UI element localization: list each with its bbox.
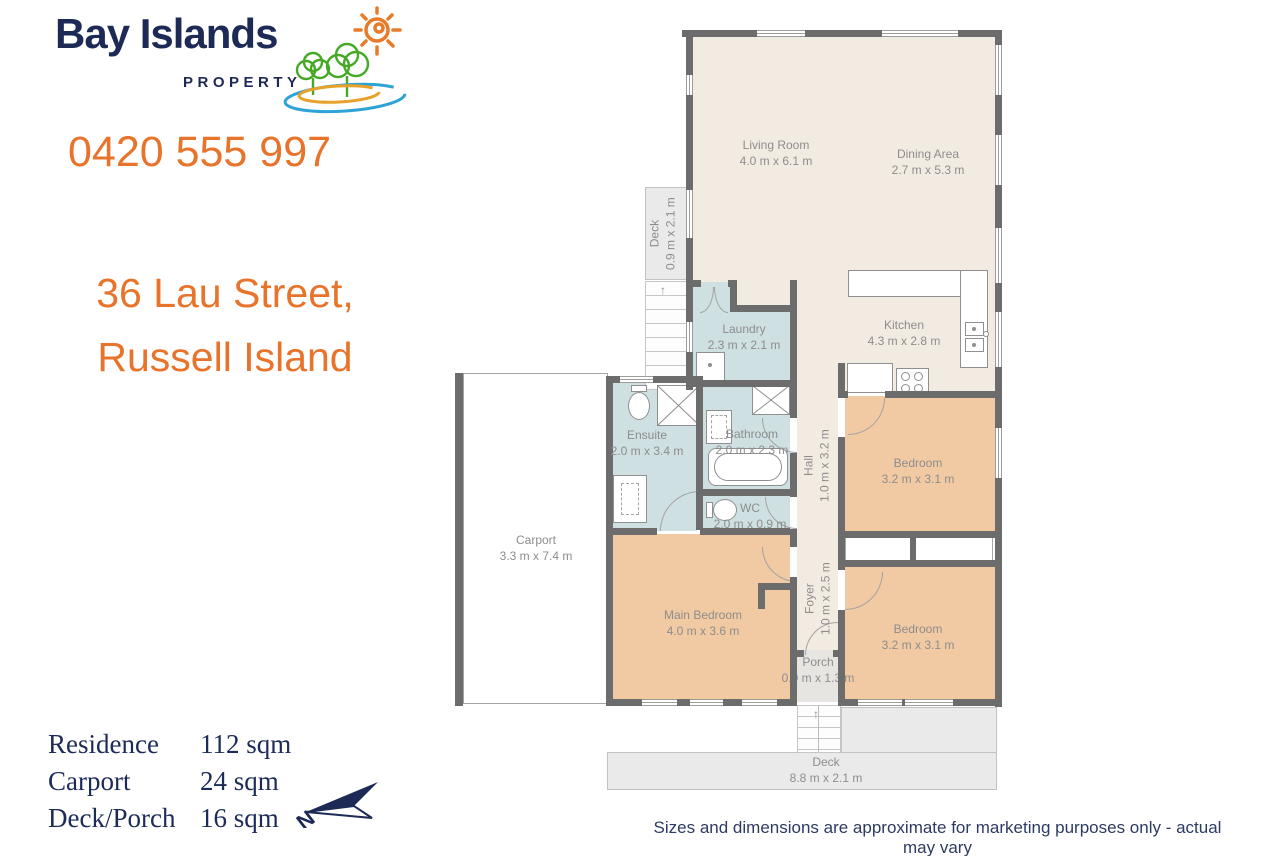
room-label-living-room: Living Room4.0 m x 6.1 m bbox=[716, 138, 836, 169]
area-summary-table: Residence112 sqm Carport24 sqm Deck/Porc… bbox=[48, 726, 291, 837]
address-line-1: 36 Lau Street, bbox=[50, 262, 400, 326]
kitchen-bench bbox=[847, 363, 893, 393]
listing-address: 36 Lau Street, Russell Island bbox=[50, 262, 400, 389]
window bbox=[686, 75, 693, 95]
room-label-wc: WC2.0 m x 0.9 m bbox=[690, 501, 810, 532]
sink-drain bbox=[972, 343, 976, 347]
wall bbox=[790, 577, 797, 706]
window bbox=[642, 699, 677, 706]
window bbox=[742, 699, 777, 706]
wall bbox=[833, 650, 845, 657]
window bbox=[995, 135, 1002, 185]
wall bbox=[885, 391, 1002, 398]
area-value: 24 sqm bbox=[200, 763, 279, 800]
wall bbox=[790, 453, 797, 497]
wall bbox=[606, 376, 613, 706]
window bbox=[690, 699, 723, 706]
wall bbox=[686, 280, 701, 287]
pantry-nook bbox=[737, 282, 790, 307]
sink-drain bbox=[972, 327, 976, 331]
room-label-carport: Carport3.3 m x 7.4 m bbox=[476, 533, 596, 564]
room-label-kitchen: Kitchen4.3 m x 2.8 m bbox=[844, 318, 964, 349]
toilet-icon bbox=[631, 385, 647, 392]
stairs-upper bbox=[645, 281, 687, 390]
room-label-bedroom-2: Bedroom3.2 m x 3.1 m bbox=[858, 622, 978, 653]
wall bbox=[838, 610, 845, 706]
wall bbox=[995, 30, 1002, 707]
room-label-dining-area: Dining Area2.7 m x 5.3 m bbox=[868, 147, 988, 178]
water-swirl-icon bbox=[284, 81, 406, 115]
area-label: Deck/Porch bbox=[48, 800, 200, 837]
table-row: Residence112 sqm bbox=[48, 726, 291, 763]
wall bbox=[737, 305, 790, 312]
wardrobe bbox=[845, 537, 993, 561]
room-label-bedroom-1: Bedroom3.2 m x 3.1 m bbox=[858, 456, 978, 487]
room-label-ensuite: Ensuite2.0 m x 3.4 m bbox=[587, 428, 707, 459]
room-label-deck-lower: Deck8.8 m x 2.1 m bbox=[766, 755, 886, 786]
stairs-lower bbox=[797, 705, 841, 753]
room-label-deck-upper: Deck0.9 m x 2.1 m bbox=[647, 179, 678, 289]
stove-burner bbox=[901, 372, 910, 381]
area-label: Carport bbox=[48, 763, 200, 800]
table-row: Carport24 sqm bbox=[48, 763, 291, 800]
window bbox=[995, 45, 1002, 95]
wall bbox=[838, 437, 845, 570]
area-value: 16 sqm bbox=[200, 800, 279, 837]
room-label-bathroom: Bathroom2.0 m x 2.3 m bbox=[692, 427, 812, 458]
brand-logo-art bbox=[275, 0, 430, 118]
room-label-hall: Hall1.0 m x 3.2 m bbox=[801, 411, 832, 521]
room-label-main-bedroom: Main Bedroom4.0 m x 3.6 m bbox=[643, 608, 763, 639]
window bbox=[905, 699, 953, 706]
wall bbox=[693, 380, 797, 387]
window bbox=[995, 228, 1002, 283]
wall bbox=[790, 385, 797, 418]
vanity-basin bbox=[621, 483, 639, 515]
area-value: 112 sqm bbox=[200, 726, 291, 763]
window bbox=[620, 376, 653, 383]
wall bbox=[910, 538, 916, 560]
wall bbox=[838, 531, 1002, 538]
wall bbox=[455, 373, 463, 706]
floor-plan: ↑ ↑ bbox=[450, 25, 1020, 825]
window bbox=[995, 312, 1002, 367]
kitchen-counter bbox=[960, 270, 988, 368]
sun-icon bbox=[355, 8, 400, 54]
stairs-up-arrow: ↑ bbox=[813, 707, 819, 721]
toilet-icon bbox=[628, 392, 650, 420]
room-label-laundry: Laundry2.3 m x 2.1 m bbox=[684, 322, 804, 353]
window bbox=[882, 30, 958, 37]
stove-burner bbox=[914, 372, 923, 381]
wall bbox=[703, 489, 790, 496]
shower-icon bbox=[752, 385, 790, 415]
phone-number: 0420 555 997 bbox=[68, 128, 331, 177]
faucet-icon bbox=[983, 331, 989, 337]
window bbox=[757, 30, 805, 37]
wall bbox=[838, 363, 845, 398]
wall bbox=[758, 583, 765, 609]
compass-north-icon: N bbox=[296, 776, 380, 828]
window bbox=[995, 428, 1002, 478]
washer-dial bbox=[708, 363, 712, 367]
window bbox=[858, 699, 902, 706]
kitchen-counter bbox=[848, 270, 961, 297]
brand-logo-title: Bay Islands bbox=[55, 10, 277, 58]
wall bbox=[606, 528, 657, 535]
sliding-door bbox=[686, 190, 693, 238]
table-row: Deck/Porch16 sqm bbox=[48, 800, 291, 837]
area-label: Residence bbox=[48, 726, 200, 763]
address-line-2: Russell Island bbox=[50, 326, 400, 390]
wall bbox=[730, 280, 737, 312]
room-label-porch: Porch0.9 m x 1.3 m bbox=[758, 655, 878, 686]
wall bbox=[838, 560, 1002, 567]
room-label-foyer: Foyer1.0 m x 2.5 m bbox=[802, 544, 833, 654]
shower-icon bbox=[657, 385, 700, 426]
